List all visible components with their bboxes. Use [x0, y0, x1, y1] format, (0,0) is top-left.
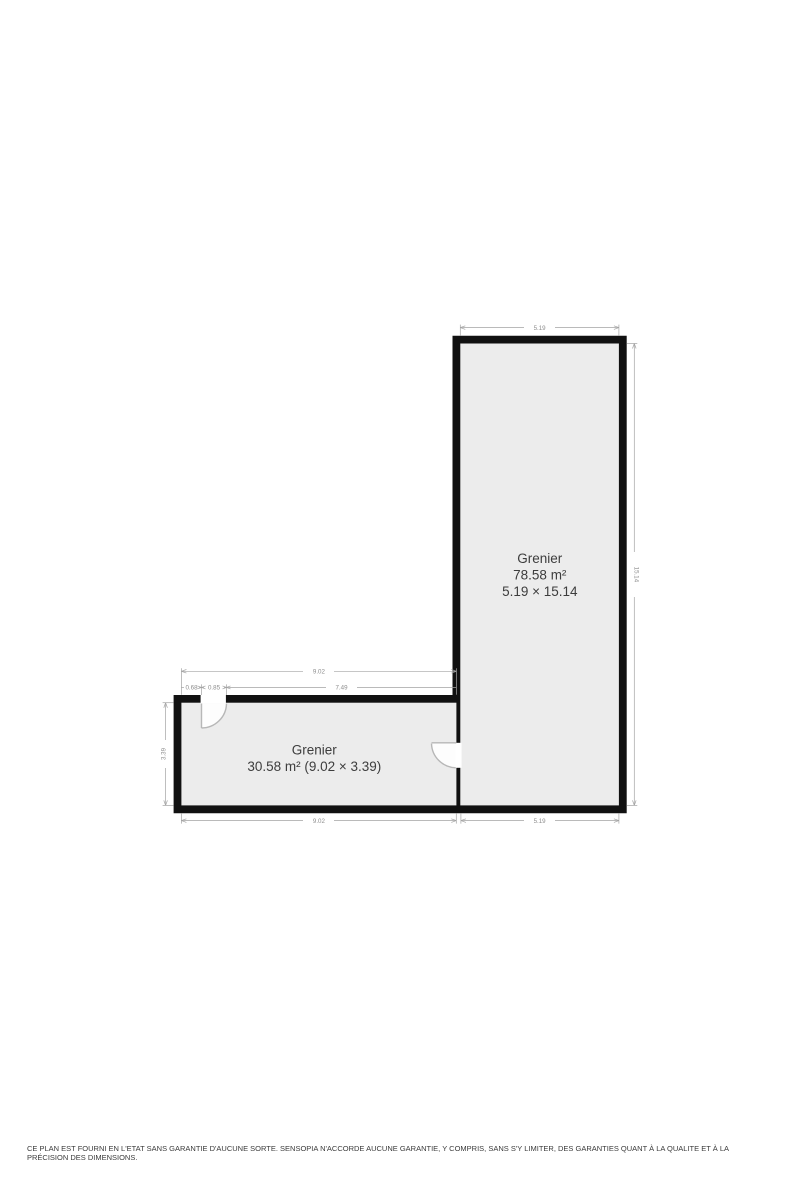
svg-text:0.68: 0.68	[185, 685, 198, 692]
svg-text:5.19 × 15.14: 5.19 × 15.14	[502, 584, 578, 599]
svg-text:3.39: 3.39	[161, 747, 168, 760]
svg-text:7.49: 7.49	[335, 685, 348, 692]
svg-text:15.14: 15.14	[632, 567, 639, 583]
svg-text:5.19: 5.19	[534, 325, 547, 332]
svg-text:Grenier: Grenier	[517, 551, 563, 566]
svg-text:9.02: 9.02	[313, 669, 326, 676]
svg-text:Grenier: Grenier	[292, 743, 338, 758]
svg-text:0.85: 0.85	[208, 685, 221, 692]
svg-text:78.58 m²: 78.58 m²	[513, 568, 567, 583]
svg-text:30.58 m² (9.02 × 3.39): 30.58 m² (9.02 × 3.39)	[247, 759, 381, 774]
svg-text:9.02: 9.02	[313, 818, 326, 825]
svg-text:5.19: 5.19	[534, 818, 547, 825]
